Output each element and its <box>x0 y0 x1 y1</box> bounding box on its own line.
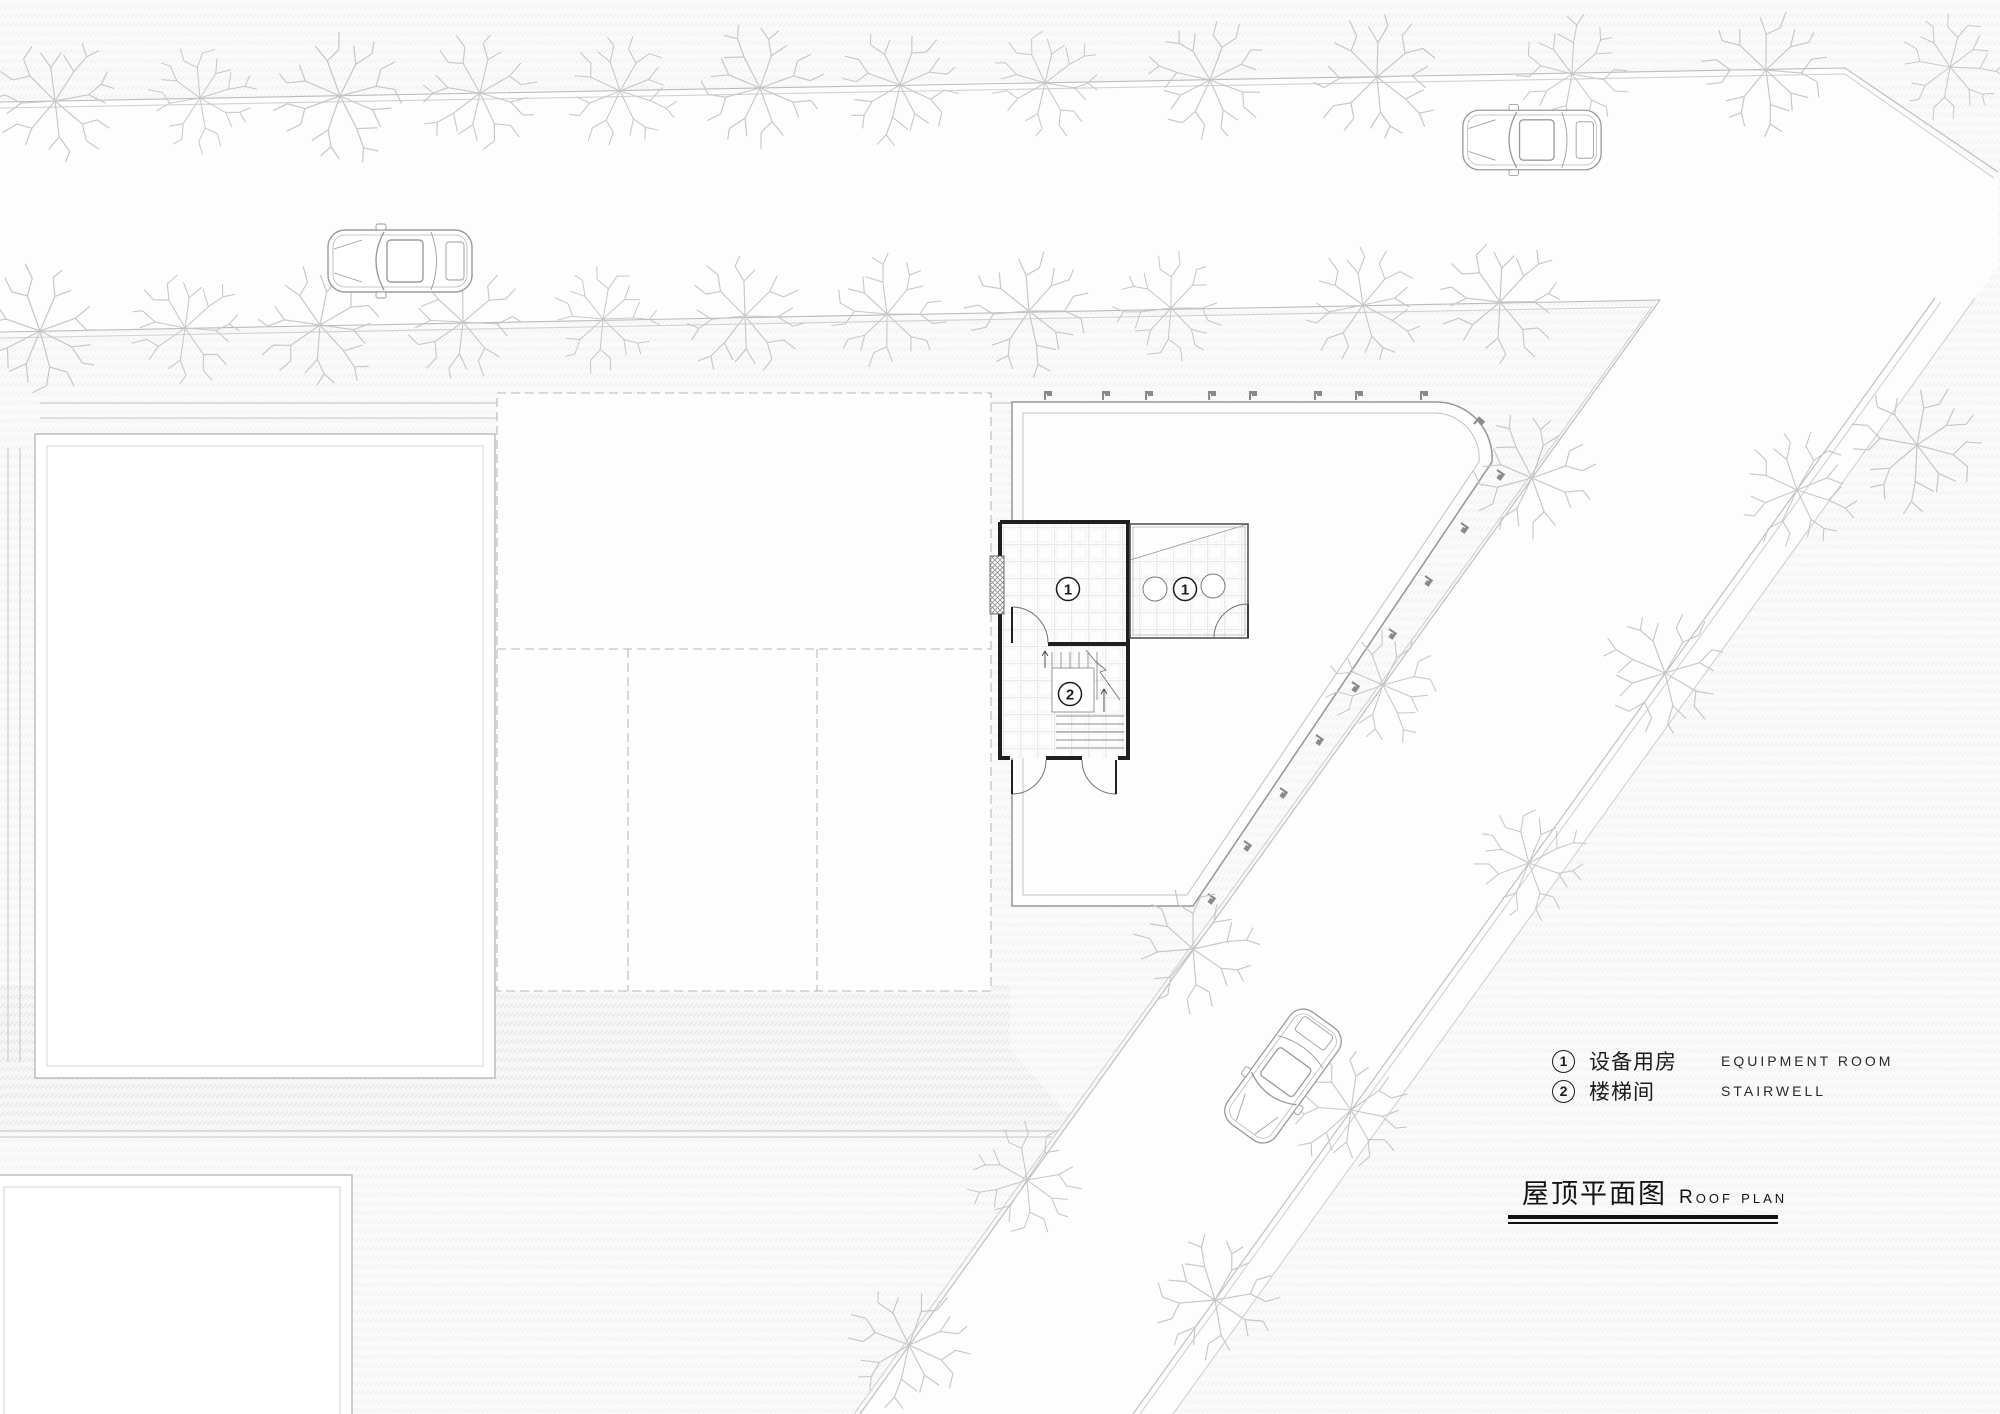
legend-symbol-1: 1 <box>1552 1050 1575 1073</box>
legend-label-zh: 楼梯间 <box>1589 1076 1721 1106</box>
adjacent-building-south <box>0 1175 352 1414</box>
legend-item-stairwell: 2 楼梯间 STAIRWELL <box>1552 1076 1893 1106</box>
adjacent-building-west <box>35 434 495 1078</box>
drawing-title-block: 屋顶平面图 Roof plan <box>1508 1172 1787 1224</box>
drawing-title-en: Roof plan <box>1679 1187 1787 1209</box>
room-marker-stairwell: 2 <box>1059 683 1082 706</box>
car-icon <box>1463 104 1601 175</box>
title-underline-thick <box>1508 1215 1778 1219</box>
legend-label-en: EQUIPMENT ROOM <box>1721 1053 1893 1069</box>
svg-text:1: 1 <box>1181 582 1189 599</box>
legend-symbol-2: 2 <box>1552 1080 1575 1103</box>
legend-label-en: STAIRWELL <box>1721 1083 1826 1099</box>
room-marker-equipment: 1 <box>1057 578 1080 601</box>
title-underline-thin <box>1508 1222 1778 1224</box>
legend: 1 设备用房 EQUIPMENT ROOM 2 楼梯间 STAIRWELL <box>1552 1046 1893 1106</box>
window-hatch <box>990 556 1004 614</box>
legend-label-zh: 设备用房 <box>1589 1046 1721 1076</box>
vent-circle <box>1201 574 1225 598</box>
drawing-title-zh: 屋顶平面图 <box>1522 1172 1667 1211</box>
roof-plan-drawing: 1 1 2 <box>0 0 2000 1414</box>
vent-circle <box>1143 577 1167 601</box>
svg-text:2: 2 <box>1066 687 1074 704</box>
dashed-parcel-outline <box>497 393 991 991</box>
svg-text:1: 1 <box>1064 582 1072 599</box>
car-icon <box>328 224 472 298</box>
legend-item-equipment-room: 1 设备用房 EQUIPMENT ROOM <box>1552 1046 1893 1076</box>
room-marker-annex: 1 <box>1174 578 1197 601</box>
